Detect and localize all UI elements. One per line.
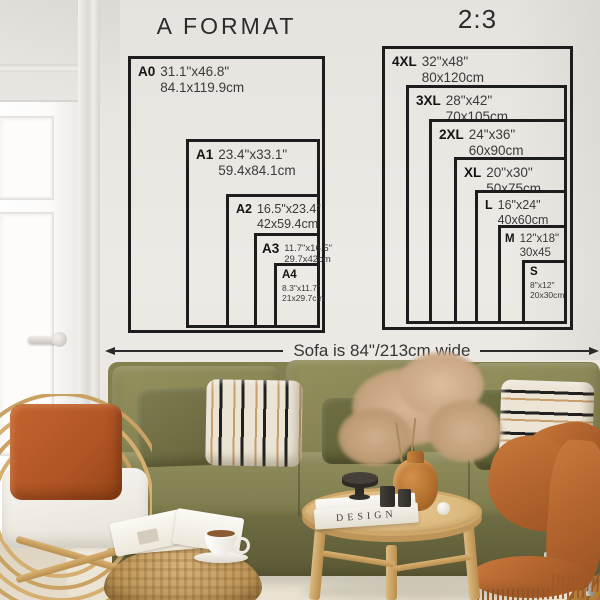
size-inches: 32"x48"	[422, 54, 484, 70]
size-inches: 8"x12"	[530, 280, 565, 291]
size-cm: 21x29.7cm	[282, 293, 324, 304]
sofa-width-annotation: Sofa is 84"/213cm wide	[105, 341, 599, 361]
poster-size-guide-photo: A FORMAT A031.1"x46.8"84.1x119.9cm A123.…	[0, 0, 600, 600]
size-cm: 30x45	[520, 247, 560, 261]
size-inches: 28"x42"	[446, 93, 508, 109]
size-inches: 11.7"x16.5"	[284, 243, 332, 254]
size-inches: 24"x36"	[469, 127, 524, 143]
dried-flowers	[428, 400, 502, 462]
table-shadow	[300, 584, 550, 600]
size-code: A2	[236, 202, 252, 217]
size-inches: 20"x30"	[486, 165, 541, 181]
sofa-seat-seam	[298, 456, 300, 518]
arrow-line-right	[480, 350, 589, 352]
size-cm: 80x120cm	[422, 70, 484, 86]
size-inches: 23.4"x33.1"	[218, 147, 295, 163]
arrow-left-icon	[105, 347, 115, 355]
wall-molding	[0, 64, 80, 72]
size-code: 3XL	[416, 93, 441, 109]
size-cm: 59.4x84.1cm	[218, 163, 295, 179]
size-inches: 16.5"x23.4"	[257, 202, 321, 217]
amber-vase-neck	[407, 451, 424, 463]
size-code: 2XL	[439, 127, 464, 143]
decor-sphere	[437, 502, 450, 515]
size-code: A3	[262, 241, 279, 257]
candle-holder	[398, 489, 411, 507]
size-code: A0	[138, 64, 155, 80]
size-code: A1	[196, 147, 213, 163]
pedestal-bowl-top	[342, 472, 378, 484]
table-leg	[386, 545, 397, 600]
door-panel-upper	[0, 116, 54, 200]
size-inches: 8.3"x11.7"	[282, 283, 324, 294]
candle-holder	[380, 486, 395, 507]
size-code: 4XL	[392, 54, 417, 70]
cup-handle	[234, 537, 250, 554]
a-format-title: A FORMAT	[128, 13, 325, 40]
size-cm: 42x59.4cm	[257, 217, 321, 232]
size-inches: 12"x18"	[520, 233, 560, 247]
arrow-right-icon	[589, 347, 599, 355]
size-code: A4	[282, 269, 297, 283]
size-inches: 31.1"x46.8"	[160, 64, 244, 80]
coffee-surface	[205, 528, 237, 539]
design-book-title: DESIGN	[336, 508, 397, 523]
size-code: M	[505, 233, 515, 247]
size-cm: 20x30cm	[530, 290, 565, 301]
size-box-a4: A48.3"x11.7"21x29.7cm	[274, 263, 320, 328]
size-code: S	[530, 266, 538, 280]
arrow-line-left	[115, 350, 283, 352]
size-cm: 84.1x119.9cm	[160, 80, 244, 96]
chair-pillow-rust	[10, 404, 122, 500]
door-handle-rose	[52, 332, 67, 347]
size-code: XL	[464, 165, 481, 181]
ratio-title: 2:3	[382, 4, 573, 35]
size-box-s: S8"x12"20x30cm	[522, 260, 567, 324]
pillow-striped-vertical	[205, 379, 302, 467]
size-code: L	[485, 198, 493, 213]
size-inches: 16"x24"	[498, 198, 549, 213]
